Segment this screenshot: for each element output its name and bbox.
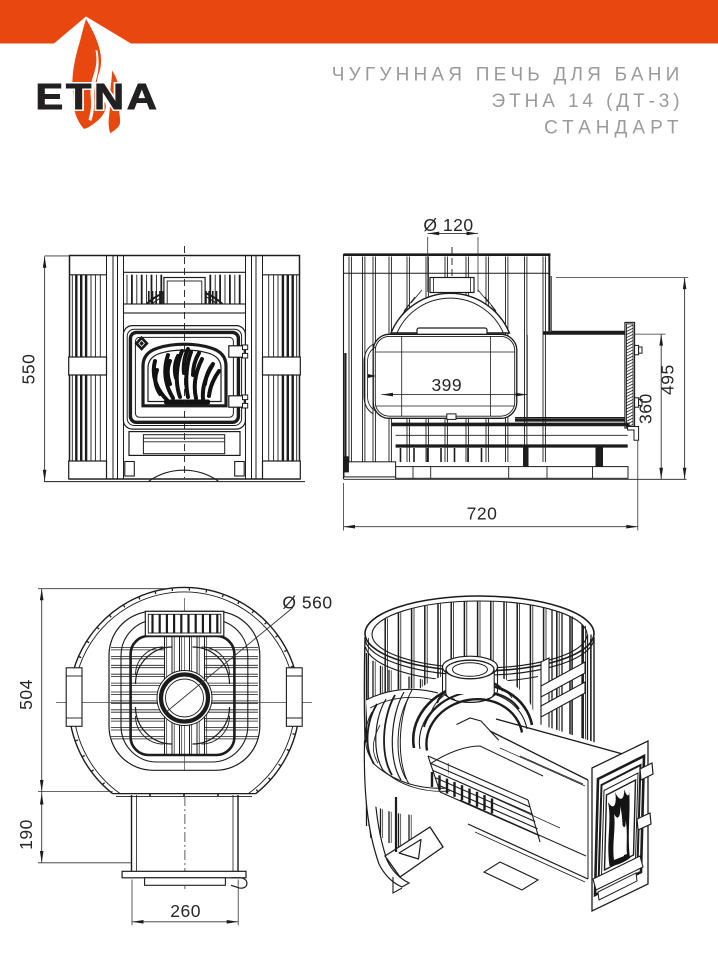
svg-text:СТАНДАРТ: СТАНДАРТ bbox=[544, 118, 683, 139]
svg-text:190: 190 bbox=[16, 819, 36, 850]
svg-text:ЧУГУННАЯ ПЕЧЬ ДЛЯ БАНИ: ЧУГУННАЯ ПЕЧЬ ДЛЯ БАНИ bbox=[332, 65, 684, 86]
svg-text:Ø 560: Ø 560 bbox=[282, 593, 332, 613]
svg-text:550: 550 bbox=[19, 354, 39, 385]
svg-text:ЭТНА 14 (ДТ-3): ЭТНА 14 (ДТ-3) bbox=[492, 91, 684, 112]
svg-text:260: 260 bbox=[170, 901, 201, 921]
svg-text:360: 360 bbox=[636, 393, 656, 424]
svg-text:399: 399 bbox=[431, 375, 462, 395]
svg-text:ETNA: ETNA bbox=[36, 77, 160, 117]
svg-text:504: 504 bbox=[16, 679, 36, 710]
svg-text:Ø 120: Ø 120 bbox=[423, 215, 473, 235]
svg-text:495: 495 bbox=[658, 364, 678, 395]
svg-text:720: 720 bbox=[467, 504, 498, 524]
